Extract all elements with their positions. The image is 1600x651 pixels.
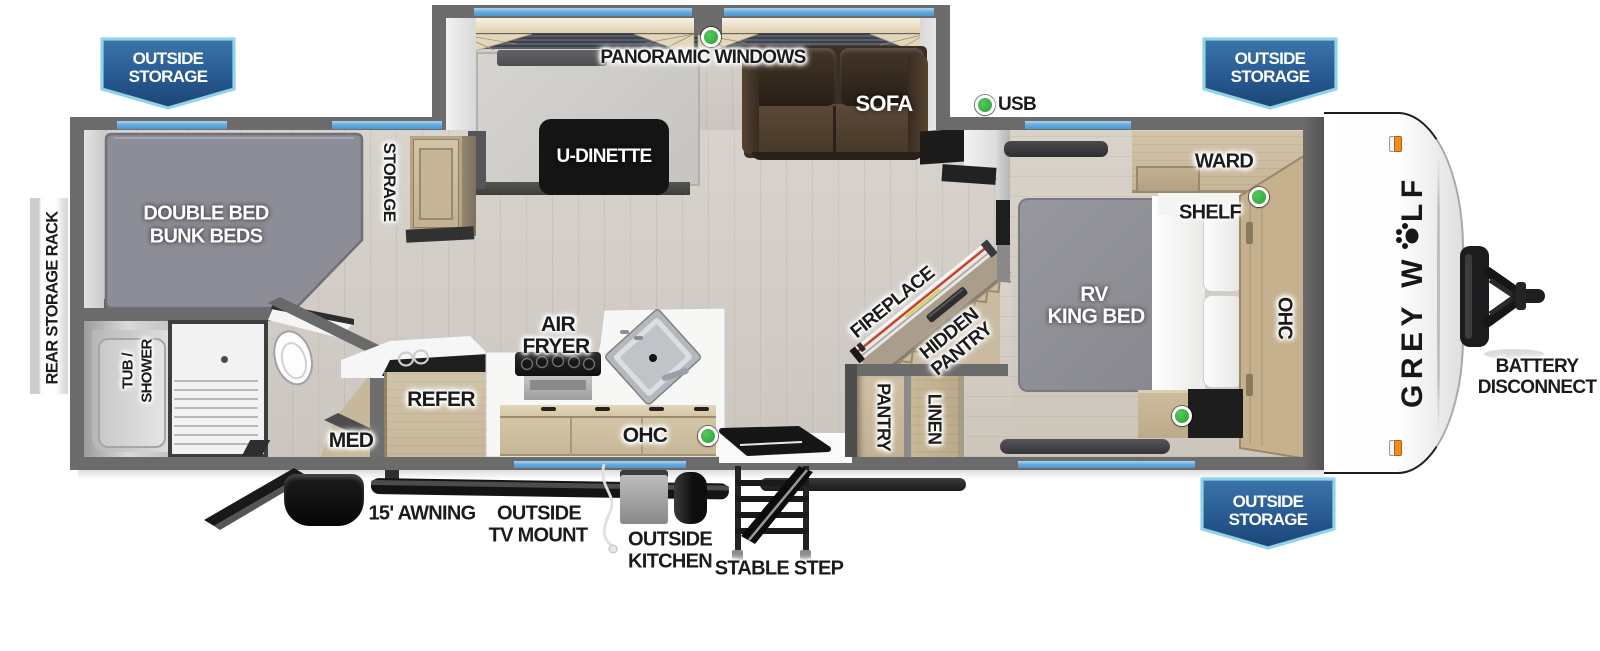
svg-text:GREY W: GREY W bbox=[1396, 254, 1429, 408]
svg-text:LF: LF bbox=[1396, 174, 1429, 222]
